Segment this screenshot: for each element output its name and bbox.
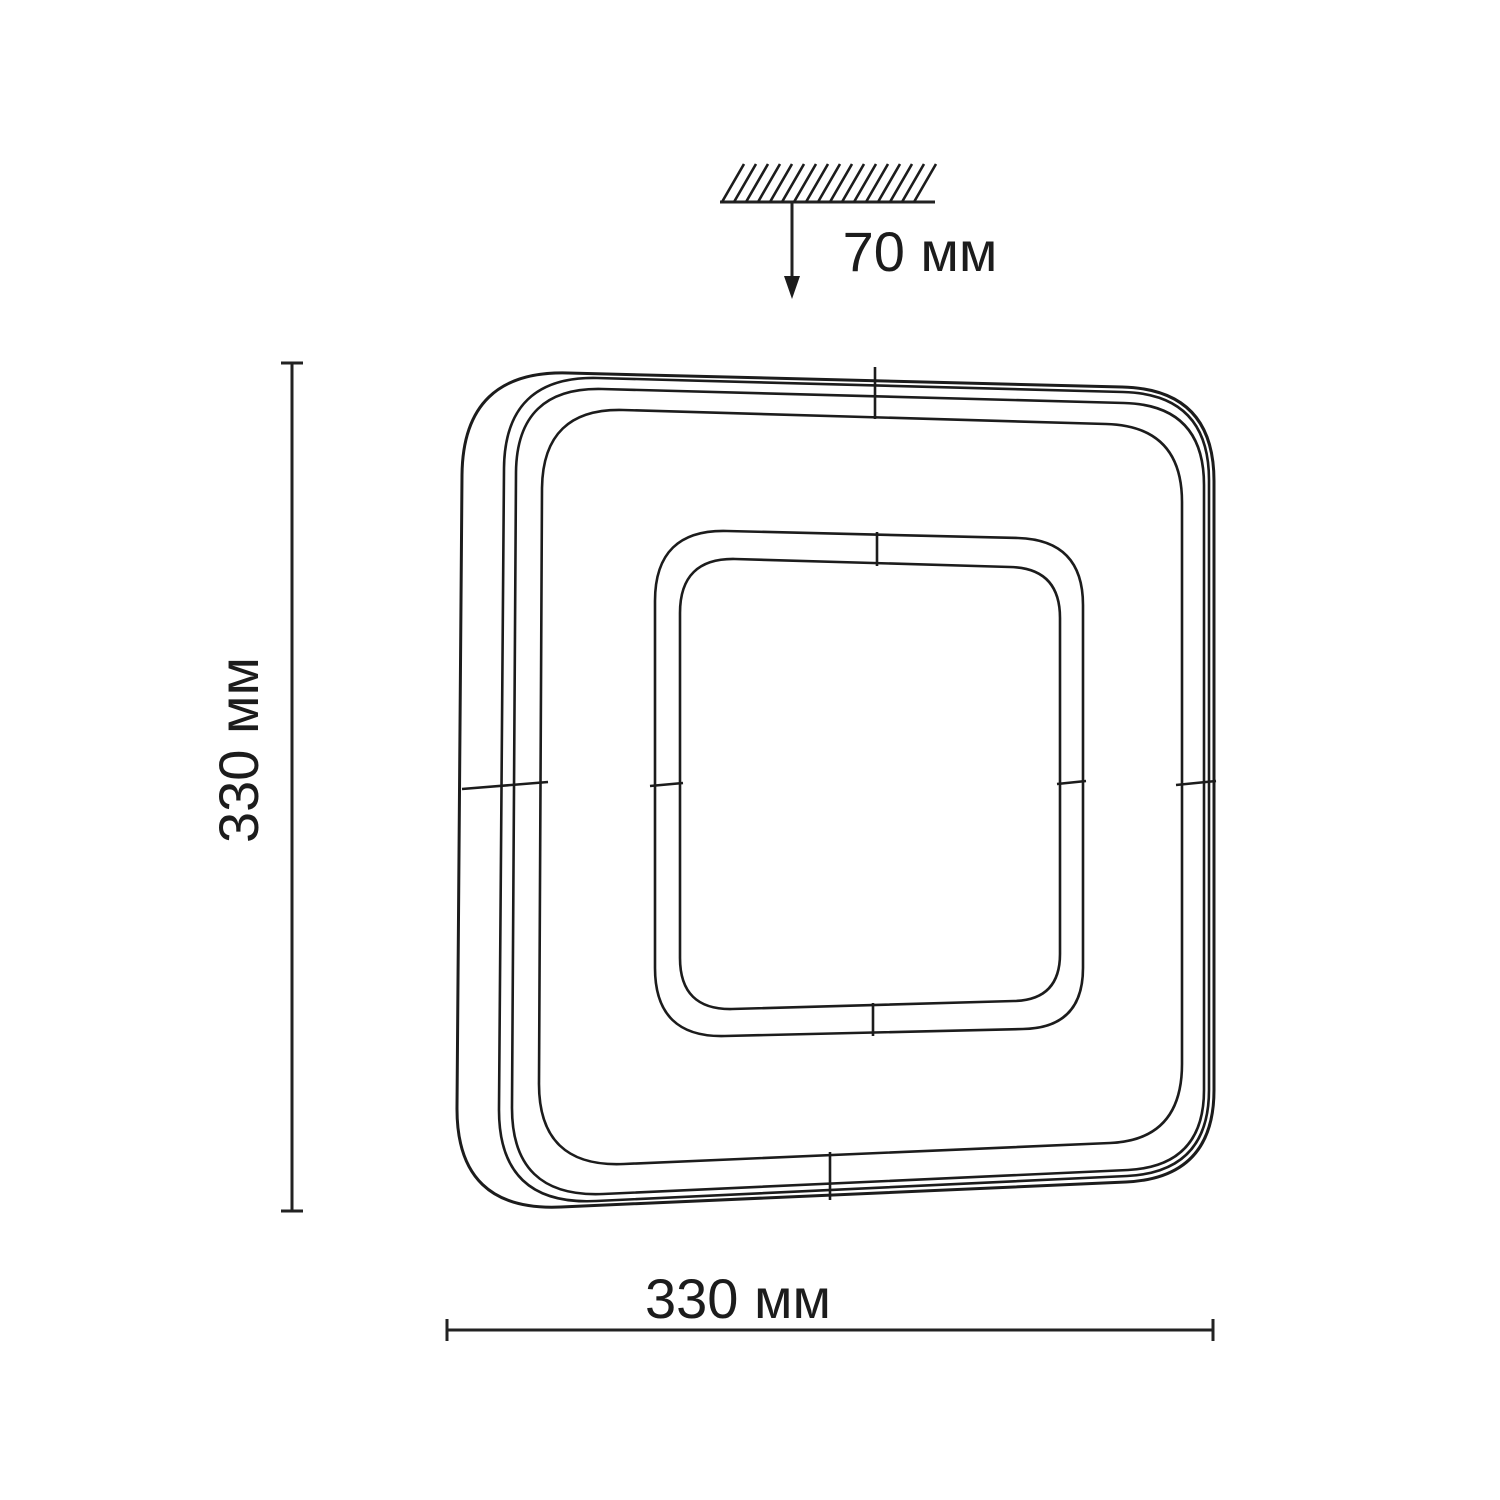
ceiling-symbol: 70 мм — [720, 164, 997, 299]
seam-left-outer — [462, 782, 548, 789]
height-dimension-line — [281, 363, 303, 1211]
outer-face-contour — [512, 389, 1204, 1194]
lamp-inner-square — [655, 531, 1083, 1036]
technical-drawing-page: 70 мм 330 мм — [0, 0, 1500, 1500]
ceiling-lamp-dimension-drawing: 70 мм 330 мм — [0, 0, 1500, 1500]
width-dimension-label: 330 мм — [645, 1267, 831, 1330]
ceiling-offset-label: 70 мм — [843, 220, 998, 283]
height-dimension: 330 мм — [207, 363, 303, 1211]
height-dimension-label: 330 мм — [207, 657, 270, 843]
seam-marks — [462, 367, 1216, 1200]
outer-silhouette-contour — [457, 373, 1214, 1207]
outer-rim-contour — [499, 378, 1209, 1201]
ceiling-hatch-strokes — [722, 164, 936, 202]
width-dimension: 330 мм — [447, 1267, 1213, 1341]
outer-ring-inner-edge-contour — [539, 410, 1182, 1164]
inner-square-outer-contour — [655, 531, 1083, 1036]
lamp-outer-ring — [457, 373, 1214, 1207]
offset-arrow-head — [784, 276, 800, 299]
seam-right-inner — [1057, 781, 1086, 784]
inner-square-inner-contour — [680, 559, 1060, 1009]
